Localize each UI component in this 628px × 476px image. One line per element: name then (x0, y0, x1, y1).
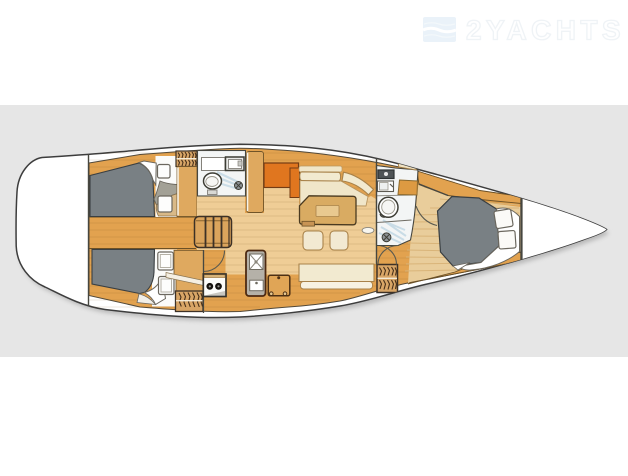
svg-text:2YACHTS: 2YACHTS (466, 15, 625, 46)
